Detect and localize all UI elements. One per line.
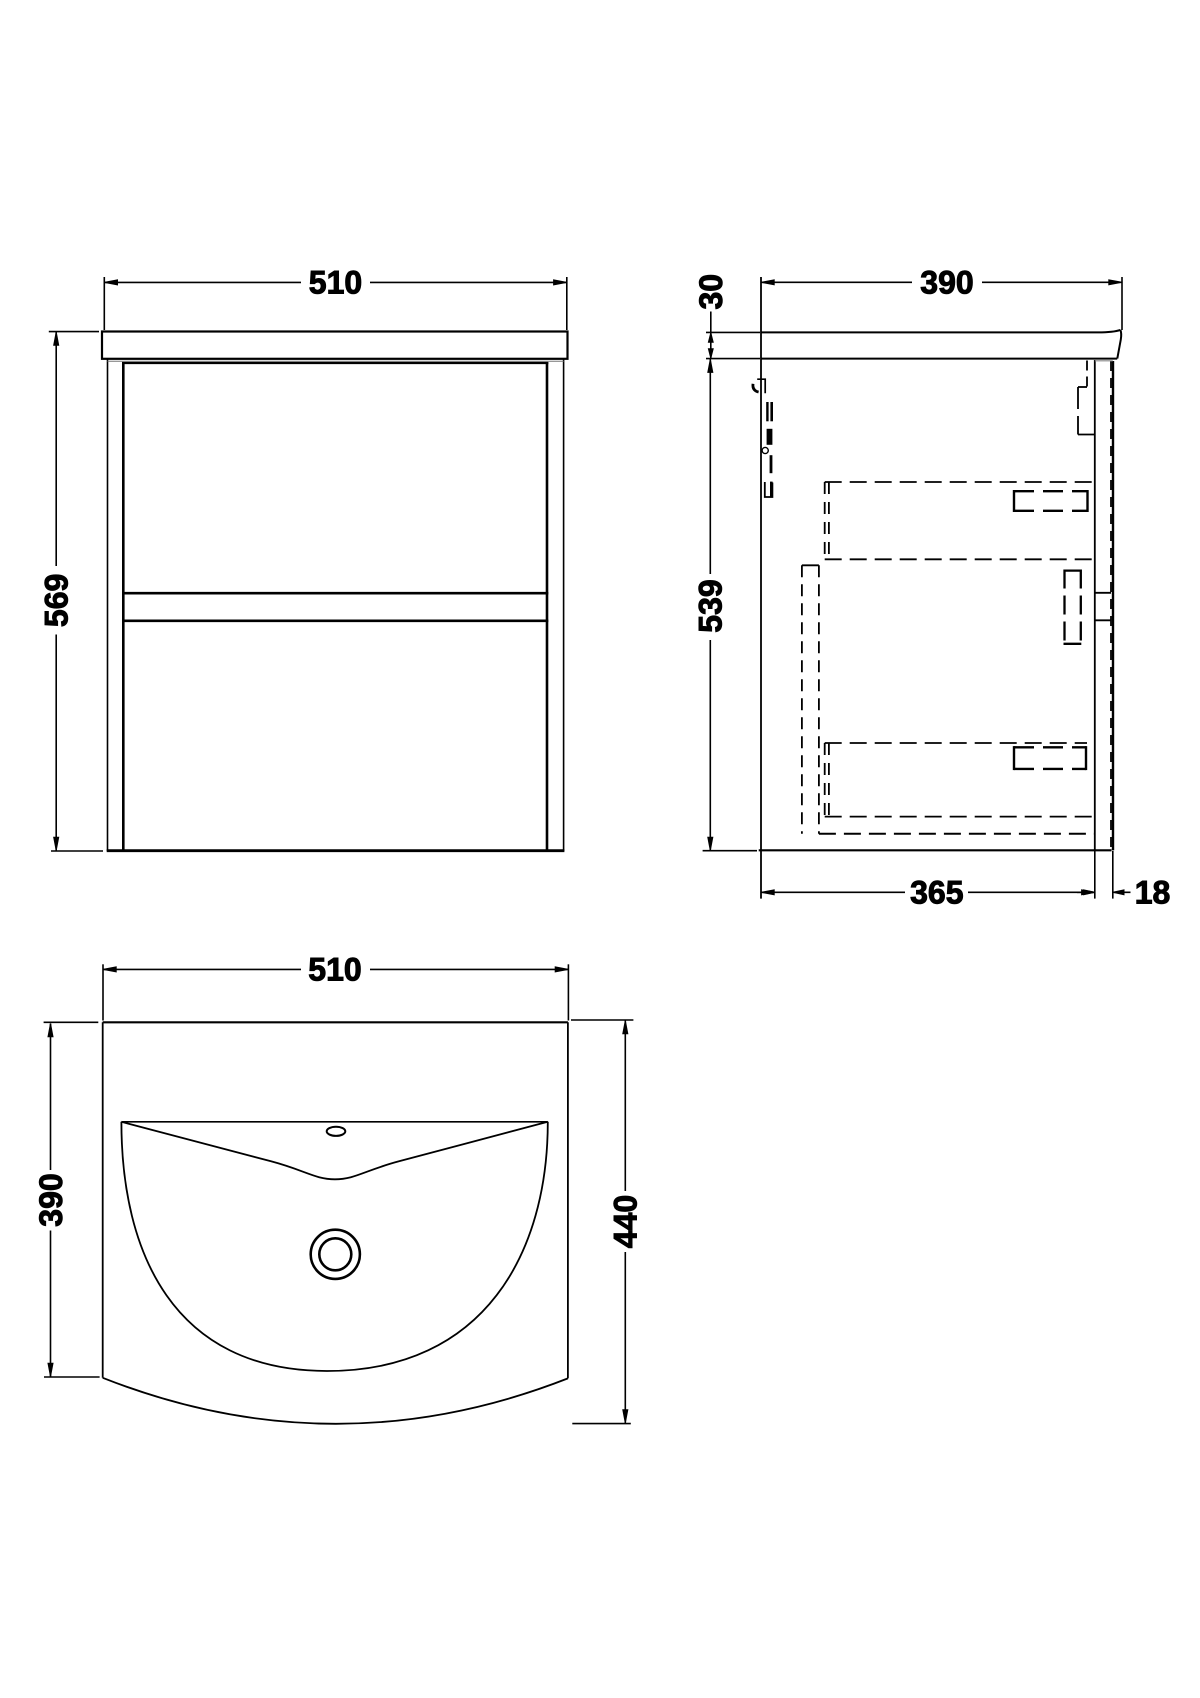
svg-text:365: 365 xyxy=(910,874,963,910)
svg-text:30: 30 xyxy=(693,274,729,310)
svg-text:18: 18 xyxy=(1135,874,1171,910)
svg-text:510: 510 xyxy=(309,265,362,301)
svg-text:569: 569 xyxy=(39,574,75,627)
svg-text:390: 390 xyxy=(33,1173,69,1226)
svg-text:390: 390 xyxy=(920,264,973,300)
svg-text:440: 440 xyxy=(608,1195,644,1248)
svg-text:510: 510 xyxy=(308,952,361,988)
svg-text:539: 539 xyxy=(693,579,729,632)
